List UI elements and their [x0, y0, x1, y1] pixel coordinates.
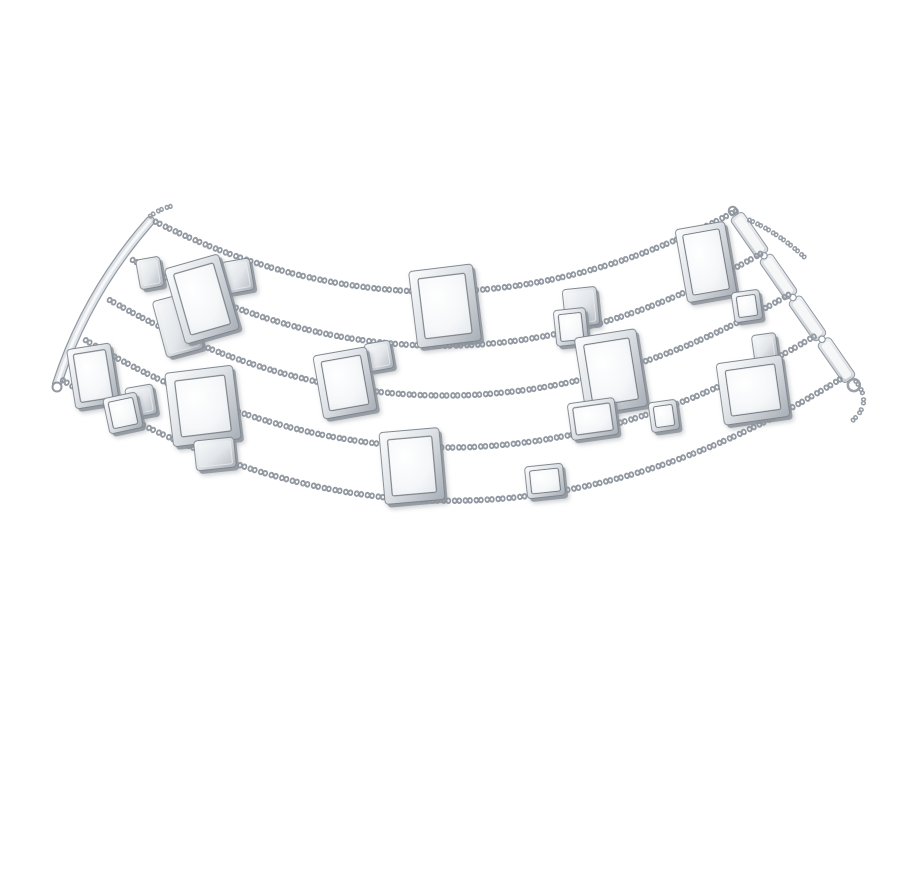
metal-plaque: [136, 256, 168, 294]
mother-of-pearl-stone: [387, 436, 436, 496]
chain-strand: ∞∞∞∞∞∞∞∞∞∞∞∞∞∞∞∞∞∞∞∞∞∞∞∞∞∞∞∞∞∞∞∞∞∞∞∞∞∞∞∞…: [0, 0, 742, 300]
mother-of-pearl-stone: [584, 338, 639, 406]
mother-of-pearl-stone: [573, 403, 614, 435]
metal-face: [197, 441, 232, 467]
metal-face: [140, 260, 161, 286]
mother-of-pearl-stone: [736, 294, 758, 317]
mop-plaque: [313, 346, 380, 422]
metal-face: [755, 336, 774, 357]
mop-plaque: [567, 397, 622, 444]
necklace-illustration: ∞∞∞∞∞∞∞∞∞∞∞∞∞∞∞∞∞∞∞∞∞∞∞∞∞∞∞∞∞∞∞∞∞∞∞∞∞∞∞∞…: [0, 0, 904, 890]
mop-plaque: [524, 463, 568, 503]
mop-plaque: [379, 427, 448, 508]
mother-of-pearl-stone: [725, 364, 781, 416]
mop-plaque: [409, 264, 485, 352]
mop-plaque: [731, 289, 766, 326]
mop-plaque: [716, 354, 793, 428]
mop-plaque: [648, 399, 683, 436]
mother-of-pearl-stone: [418, 273, 472, 339]
mother-of-pearl-stone: [73, 349, 113, 402]
chain-tail: ∞∞∞∞∞∞∞∞∞∞∞∞: [0, 0, 174, 223]
product-photo: ∞∞∞∞∞∞∞∞∞∞∞∞∞∞∞∞∞∞∞∞∞∞∞∞∞∞∞∞∞∞∞∞∞∞∞∞∞∞∞∞…: [0, 0, 904, 890]
mother-of-pearl-stone: [321, 355, 369, 411]
mother-of-pearl-stone: [529, 468, 560, 494]
mother-of-pearl-stone: [653, 404, 675, 427]
mother-of-pearl-stone: [108, 397, 138, 429]
mother-of-pearl-stone: [175, 375, 232, 437]
metal-plaque: [194, 437, 240, 475]
